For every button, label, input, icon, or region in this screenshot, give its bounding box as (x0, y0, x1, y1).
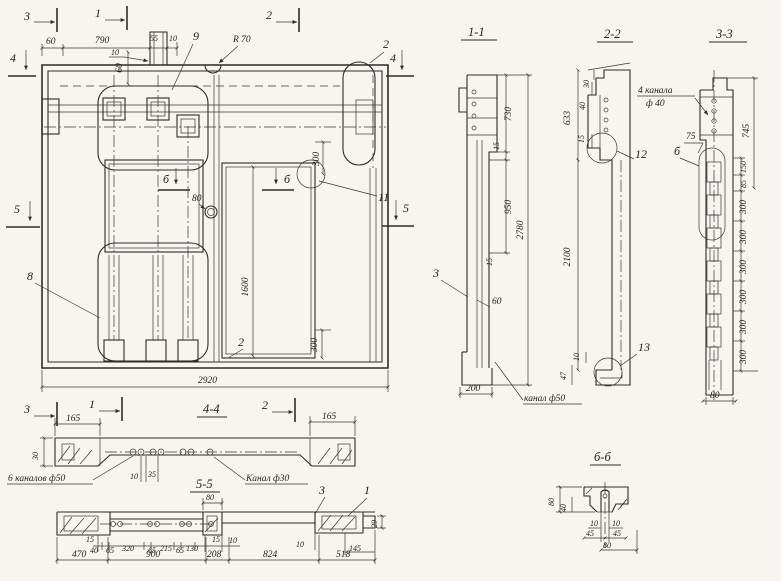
dim-2100: 2100 (563, 247, 573, 266)
dim-215: 215 (160, 544, 172, 553)
dim-15: 15 (577, 135, 586, 143)
view-4-4: 4-4 3 1 2 165 165 30 10 35 6 каналов ф50… (7, 397, 370, 516)
dim-730: 730 (504, 107, 514, 122)
dim-200: 200 (466, 384, 481, 394)
dim-80-hole: 80 (192, 194, 202, 204)
dim-790: 790 (95, 36, 110, 46)
dim-824: 824 (263, 550, 278, 560)
title-section-2-2: 2-2 (604, 27, 621, 41)
label-11: 11 (378, 190, 389, 204)
upper-recess (98, 86, 208, 170)
r70-notch (205, 65, 221, 73)
label-b: б (674, 144, 681, 158)
callout-kanal-f30: Канал ф30 (245, 473, 290, 484)
section-3-3: 3-3 4 канала ф 40 75 б 745 150 85 300 30… (637, 27, 758, 405)
dim-300-2: 300 (739, 230, 749, 246)
section-2-2: 2-2 633 30 40 15 2100 10 47 12 13 (559, 27, 650, 386)
dim-150: 150 (739, 161, 748, 173)
callout-4kanala-line1: 4 канала (638, 86, 673, 96)
dim-15-upper: 15 (492, 142, 501, 150)
dim-10-note: 10 (111, 48, 119, 57)
drawing-sheet: 60 790 55 10 10 60 R 70 2920 1600 300 30… (0, 0, 781, 581)
dim-165-right: 165 (322, 412, 337, 422)
label-3: 3 (432, 266, 439, 280)
callout-4kanala-line2: ф 40 (646, 98, 665, 109)
main-view: 60 790 55 10 10 60 R 70 2920 1600 300 30… (6, 6, 414, 392)
dim-65-3: 65 (176, 546, 184, 555)
view-6-6: б-б 80 40 10 10 45 45 80 (547, 450, 637, 554)
dim-15-lower: 15 (485, 258, 494, 266)
title-section-1-1: 1-1 (468, 25, 485, 39)
label-3-v55: 3 (318, 483, 325, 497)
dim-1600: 1600 (241, 277, 251, 296)
dim-10a-v55: 10 (229, 536, 237, 545)
dim-75: 75 (686, 132, 696, 142)
dim-300-3: 300 (739, 260, 749, 276)
dim-165-left: 165 (66, 414, 81, 424)
dim-633: 633 (563, 111, 573, 126)
profile-6-6 (584, 487, 628, 512)
dim-65-1: 65 (106, 546, 114, 555)
label-2-top: 2 (383, 37, 389, 51)
marker-1-bottom: 1 (89, 397, 95, 411)
marker-1-top: 1 (95, 6, 101, 20)
right-capsule (343, 62, 375, 165)
dim-208: 208 (207, 550, 222, 560)
dim-518: 518 (336, 550, 351, 560)
dim-300-1: 300 (739, 200, 749, 216)
title-section-3-3: 3-3 (715, 27, 733, 41)
dim-80-rib: 80 (206, 493, 214, 502)
dim-60-top: 60 (46, 37, 56, 47)
dim-10-right: 10 (612, 519, 620, 528)
dim-10: 10 (572, 353, 581, 361)
dim-60-wall: 60 (492, 297, 502, 307)
marker-5-left: 5 (14, 202, 20, 216)
dim-47: 47 (559, 371, 568, 380)
dim-35-v44: 35 (147, 470, 156, 479)
marker-5-right: 5 (403, 201, 409, 215)
marker-4-right: 4 (390, 51, 396, 65)
dim-55: 55 (150, 34, 158, 43)
dim-10-left: 10 (590, 519, 598, 528)
dim-30-v44: 30 (31, 452, 40, 461)
dim-320: 320 (121, 544, 134, 553)
marker-2-bottom: 2 (262, 398, 268, 412)
dim-29: 29 (370, 520, 379, 528)
dim-40-v55: 40 (90, 546, 98, 555)
dim-10-top: 10 (169, 34, 177, 43)
marker-2-top: 2 (266, 8, 272, 22)
view-5-5: 5-5 80 15 40 65 320 65 215 65 130 15 10 … (57, 477, 386, 564)
label-2-bot: 2 (238, 335, 244, 349)
label-9: 9 (193, 29, 199, 43)
dim-80-bottom: 80 (710, 391, 720, 401)
dim-470: 470 (72, 550, 87, 560)
dim-60-vert: 60 (115, 63, 125, 73)
dim-40: 40 (578, 102, 587, 110)
dim-15a-v55: 15 (86, 535, 94, 544)
dim-45-left: 45 (586, 529, 594, 538)
marker-4-left: 4 (10, 51, 16, 65)
dim-45-right: 45 (613, 529, 621, 538)
dim-130: 130 (186, 544, 198, 553)
dim-2920: 2920 (198, 376, 217, 386)
dim-10b-v55: 10 (296, 540, 304, 549)
callout-6-channels: 6 каналов ф50 (8, 473, 66, 484)
dim-80-bot-66: 80 (603, 541, 611, 550)
dim-745: 745 (742, 124, 752, 139)
dim-15b-v55: 15 (212, 535, 220, 544)
title-view-b-b: б-б (594, 450, 611, 464)
dim-85: 85 (739, 180, 748, 188)
dim-2780: 2780 (516, 220, 526, 239)
detail-circle-13 (594, 358, 622, 386)
label-13: 13 (638, 340, 650, 354)
dim-80-side: 80 (547, 498, 556, 506)
section-1-1: 1-1 730 15 950 15 2780 60 200 3 канал ф5… (432, 25, 582, 404)
label-8: 8 (27, 269, 33, 283)
callout-kanal-f50: канал ф50 (524, 393, 565, 404)
marker-b-right: б (284, 172, 291, 186)
dim-900: 900 (146, 550, 161, 560)
title-view-5-5: 5-5 (196, 477, 213, 491)
dim-30: 30 (582, 80, 591, 89)
marker-3-top: 3 (23, 9, 30, 23)
door-opening (222, 163, 315, 358)
dim-300-5: 300 (739, 320, 749, 336)
dim-r70: R 70 (232, 35, 251, 45)
dim-10-v44: 10 (130, 472, 138, 481)
dim-40-66: 40 (559, 504, 568, 512)
marker-b-left: б (163, 172, 170, 186)
dim-300-bot: 300 (310, 338, 320, 354)
dim-300-top: 300 (312, 152, 322, 168)
title-view-4-4: 4-4 (203, 402, 220, 416)
dim-300-4: 300 (739, 290, 749, 306)
hole-80 (205, 206, 217, 218)
dim-300-6: 300 (739, 350, 749, 366)
drawing-canvas: 60 790 55 10 10 60 R 70 2920 1600 300 30… (0, 0, 781, 581)
dim-950: 950 (504, 200, 514, 215)
label-12: 12 (635, 147, 647, 161)
label-1-v55: 1 (364, 483, 370, 497)
marker-3-bottom: 3 (23, 402, 30, 416)
